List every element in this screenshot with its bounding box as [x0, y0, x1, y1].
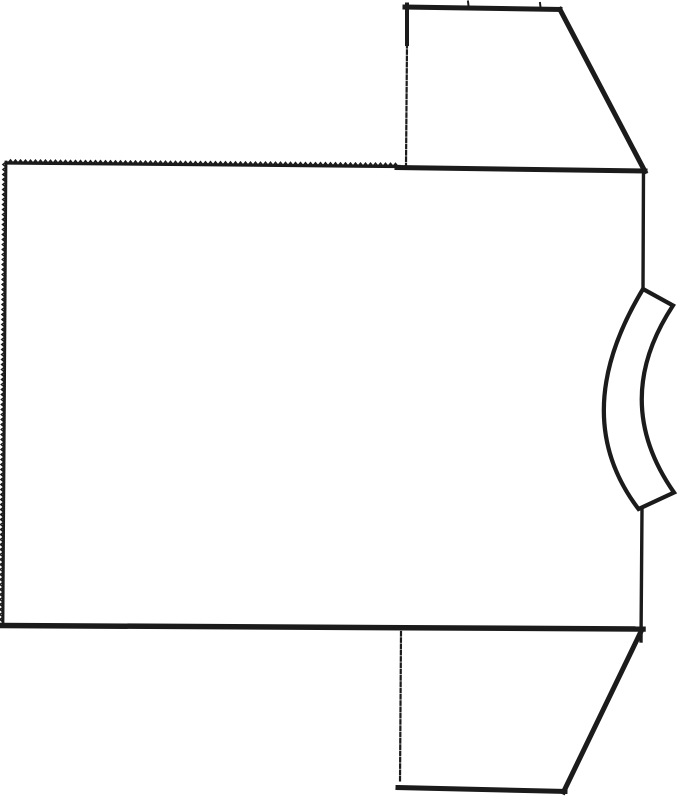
sleeve-top-cap-edge — [405, 7, 560, 10]
sleeve-bottom-left-edge-dashed — [400, 632, 401, 783]
page — [0, 0, 687, 800]
sleeve-top-panel — [407, 6, 644, 170]
body-bottom-edge — [2, 626, 643, 630]
body-panel — [3, 161, 644, 629]
armhole-upper-edge — [643, 170, 644, 291]
sleeve-top-left-edge-dashed — [406, 44, 407, 166]
tshirt-pattern-drawing — [0, 0, 687, 800]
shoulder-seam-edge — [397, 168, 645, 172]
sleeve-top-notch-2 — [540, 3, 541, 8]
drawing-layer — [0, 2, 674, 793]
armhole-lower-edge — [641, 510, 642, 641]
sleeve-top-notch-1 — [468, 2, 469, 7]
